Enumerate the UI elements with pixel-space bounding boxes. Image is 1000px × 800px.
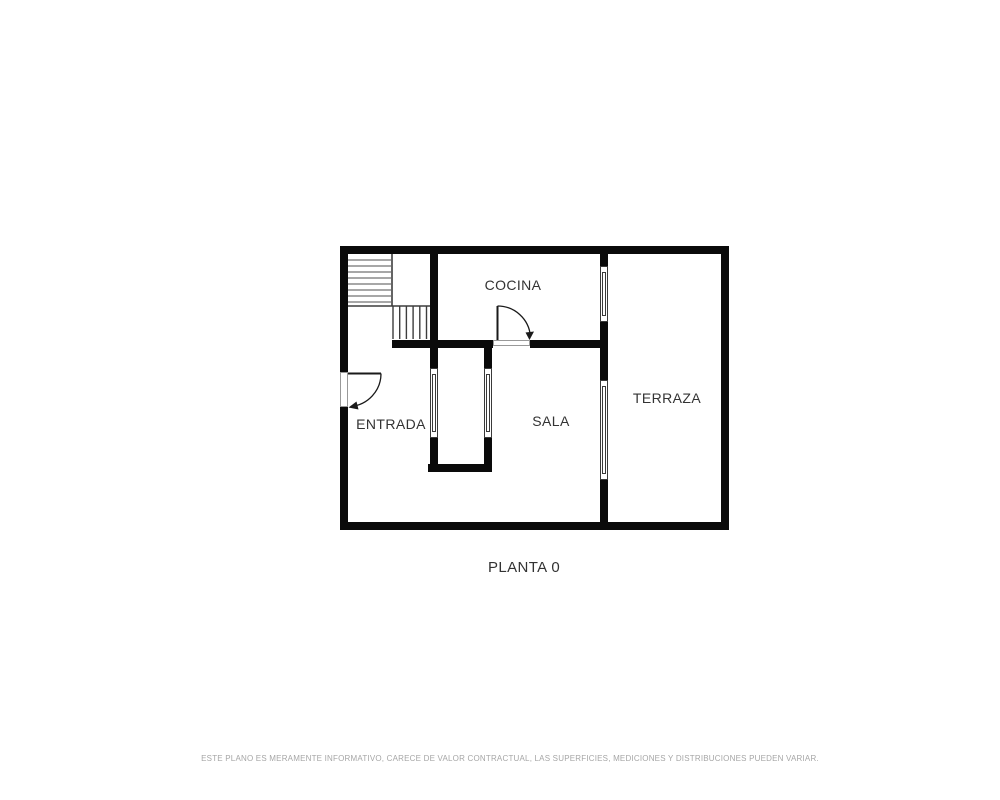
cocina-left-wall: [430, 254, 438, 368]
wall-left-upper: [340, 254, 348, 372]
entrada-door: [341, 373, 382, 410]
terraza-divider-top: [600, 254, 608, 266]
staircase: [348, 254, 430, 339]
stairs-lower-flight: [393, 306, 427, 339]
window-stairwell-right: [485, 369, 492, 438]
stairwell-bottom-wall: [428, 464, 492, 472]
entrada-door-arrow-icon: [349, 402, 359, 410]
wall-right: [721, 254, 729, 522]
room-label-cocina: COCINA: [485, 277, 542, 293]
terraza-divider-bottom: [600, 480, 608, 522]
entrada-door-swing-arc: [351, 374, 381, 407]
room-label-terraza: TERRAZA: [633, 390, 701, 406]
stairwell-right-wall-upper: [484, 348, 492, 368]
disclaimer-text: ESTE PLANO ES MERAMENTE INFORMATIVO, CAR…: [201, 754, 819, 763]
window-terraza-upper: [601, 267, 608, 322]
windows: [431, 267, 608, 480]
floorplan-drawing: COCINA TERRAZA ENTRADA SALA PLANTA 0 EST…: [0, 0, 1000, 800]
wall-left-lower: [340, 407, 348, 522]
room-label-sala: SALA: [532, 413, 570, 429]
interior-walls: [392, 254, 608, 522]
cocina-door-swing-arc: [498, 306, 531, 336]
stairs-upper-flight: [348, 260, 391, 302]
cocina-door-arrow-icon: [526, 332, 535, 341]
wall-top: [340, 246, 729, 254]
window-terraza-lower: [601, 381, 608, 480]
entrada-door-threshold: [341, 373, 348, 407]
wall-bottom: [340, 522, 729, 530]
cocina-bottom-wall-right: [530, 340, 608, 348]
plan-title: PLANTA 0: [488, 559, 560, 576]
room-label-entrada: ENTRADA: [356, 416, 426, 432]
window-stairwell-left: [431, 369, 438, 438]
cocina-door-threshold: [494, 341, 530, 346]
cocina-bottom-wall-left: [392, 340, 493, 348]
floorplan-page: COCINA TERRAZA ENTRADA SALA PLANTA 0 EST…: [0, 0, 1000, 800]
terraza-divider-middle: [600, 322, 608, 380]
room-labels: COCINA TERRAZA ENTRADA SALA: [356, 277, 701, 432]
cocina-door: [494, 306, 535, 346]
